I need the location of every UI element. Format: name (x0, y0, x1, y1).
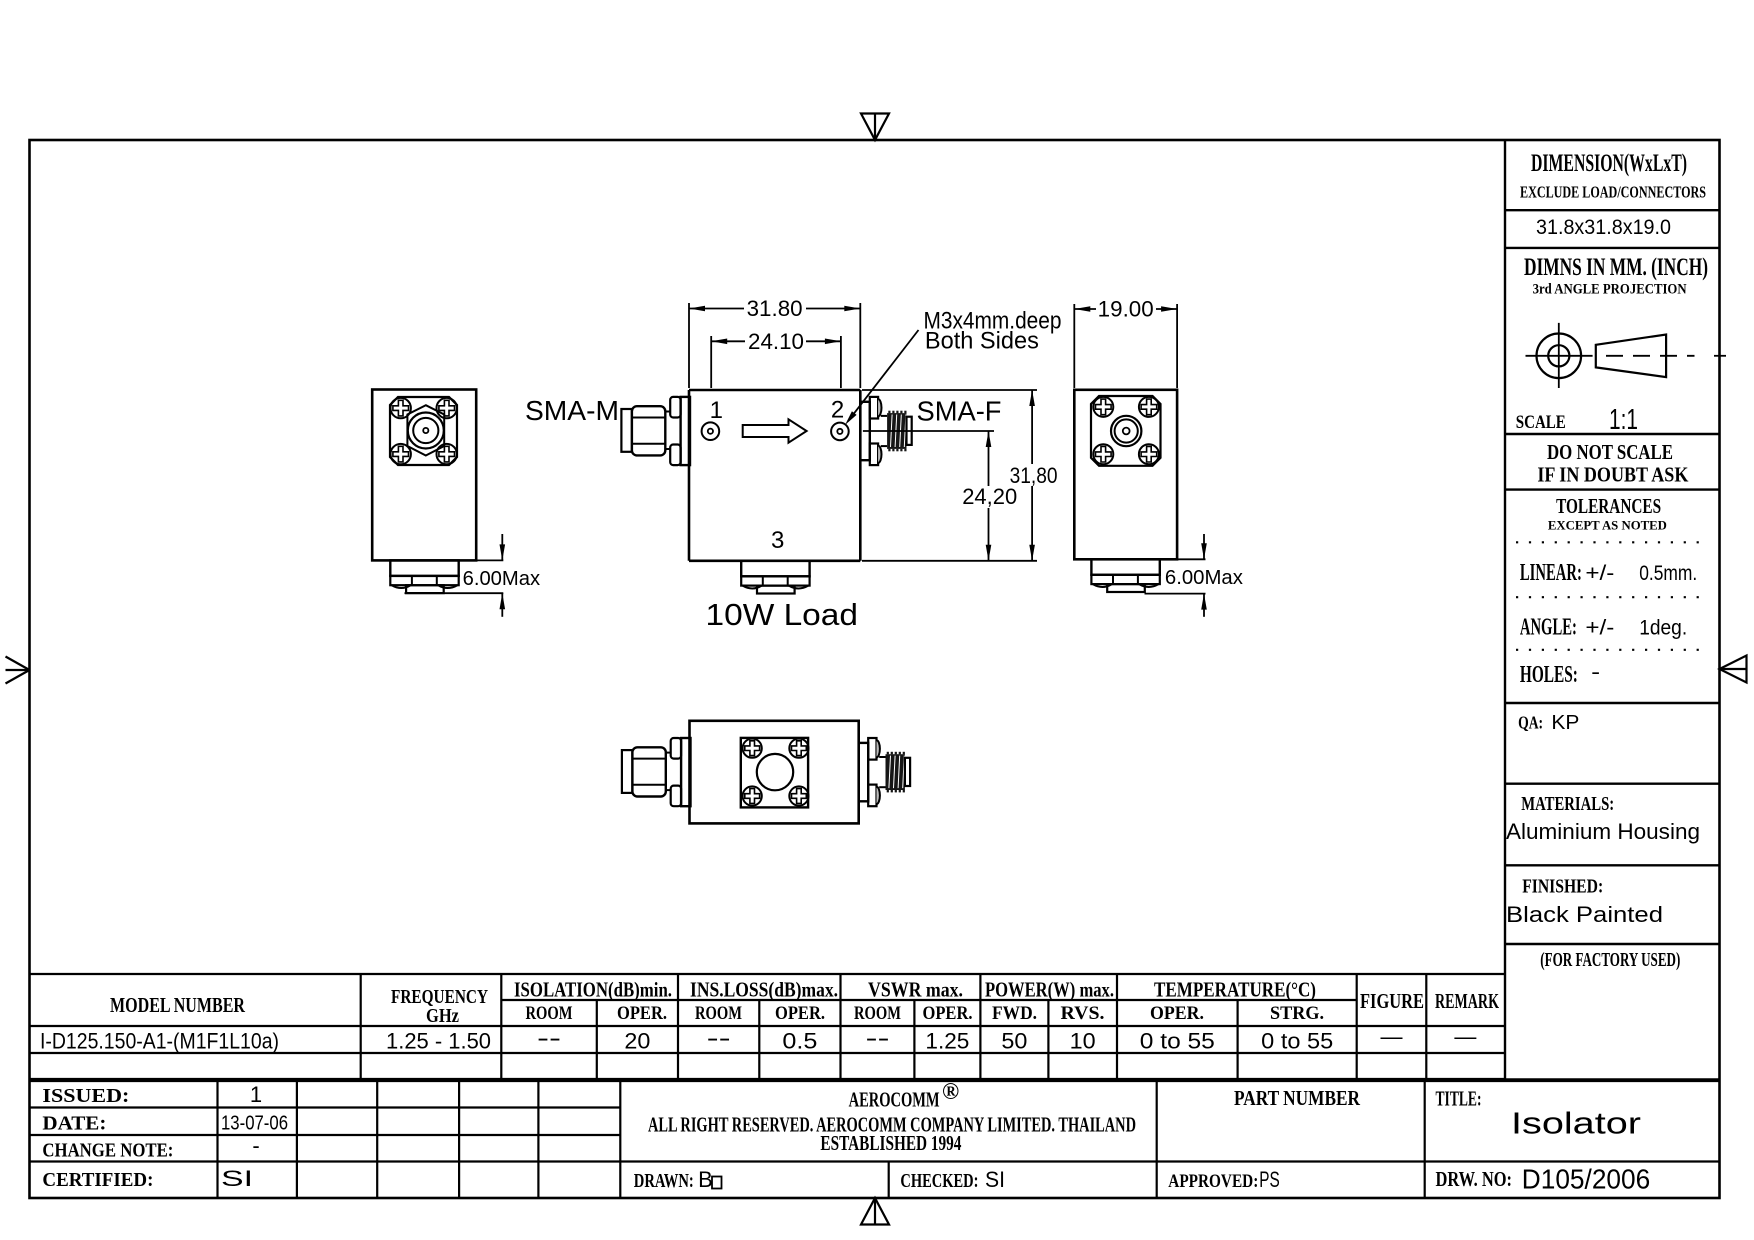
svg-text:RVS.: RVS. (1061, 1003, 1105, 1024)
svg-text:31.80: 31.80 (747, 296, 803, 321)
svg-text:20: 20 (624, 1029, 650, 1054)
svg-text:MODEL NUMBER: MODEL NUMBER (110, 993, 246, 1017)
svg-text:0.5mm.: 0.5mm. (1639, 562, 1697, 585)
svg-text:SCALE: SCALE (1516, 413, 1566, 433)
svg-text:PART NUMBER: PART NUMBER (1234, 1086, 1361, 1110)
svg-text:+/-: +/- (1585, 617, 1614, 640)
svg-text:DRAWN:: DRAWN: (634, 1170, 694, 1192)
svg-text:SI: SI (221, 1166, 253, 1191)
svg-text:1: 1 (710, 397, 723, 424)
svg-text:CERTIFIED:: CERTIFIED: (42, 1169, 153, 1191)
svg-text:QA:: QA: (1518, 713, 1543, 733)
svg-text:DO NOT SCALE: DO NOT SCALE (1547, 440, 1673, 464)
svg-text:SMA-M: SMA-M (525, 395, 619, 426)
svg-text:1:1: 1:1 (1609, 404, 1638, 436)
svg-text:-: - (252, 1133, 259, 1158)
svg-text:--: -- (537, 1025, 561, 1052)
svg-text:Both Sides: Both Sides (925, 327, 1039, 354)
svg-text:FIGURE: FIGURE (1360, 989, 1424, 1013)
svg-text:APPROVED:: APPROVED: (1168, 1171, 1258, 1192)
svg-text:®: ® (942, 1079, 959, 1104)
svg-text:ROOM: ROOM (854, 1003, 901, 1024)
svg-text:DIMENSION(WxLxT): DIMENSION(WxLxT) (1531, 150, 1687, 177)
svg-text:6.00Max: 6.00Max (463, 568, 540, 590)
svg-text:B: B (698, 1167, 713, 1192)
svg-text:STRG.: STRG. (1270, 1003, 1324, 1024)
svg-text:AEROCOMM: AEROCOMM (849, 1088, 940, 1112)
svg-text:10: 10 (1070, 1029, 1096, 1054)
svg-text:—: — (1381, 1024, 1403, 1049)
svg-text:VSWR max.: VSWR max. (868, 978, 963, 1002)
svg-text:ROOM: ROOM (695, 1003, 742, 1024)
svg-text:0 to 55: 0 to 55 (1261, 1029, 1333, 1054)
svg-text:13-07-06: 13-07-06 (221, 1113, 288, 1135)
svg-text:KP: KP (1551, 712, 1579, 734)
svg-text:POWER(W) max.: POWER(W) max. (985, 978, 1114, 1002)
svg-text:ANGLE:: ANGLE: (1520, 614, 1577, 641)
svg-text:1.25 - 1.50: 1.25 - 1.50 (386, 1029, 491, 1054)
svg-text:TEMPERATURE(°C): TEMPERATURE(°C) (1154, 978, 1316, 1002)
svg-text:FINISHED:: FINISHED: (1522, 877, 1603, 898)
svg-text:HOLES:: HOLES: (1520, 661, 1578, 688)
svg-text:IF IN DOUBT ASK: IF IN DOUBT ASK (1537, 463, 1689, 487)
svg-text:1: 1 (250, 1082, 262, 1107)
svg-text:Aluminium Housing: Aluminium Housing (1506, 819, 1700, 844)
svg-text:0.5: 0.5 (782, 1029, 817, 1054)
svg-text:OPER.: OPER. (617, 1003, 667, 1024)
svg-text:6.00Max: 6.00Max (1165, 567, 1243, 589)
svg-text:31.8x31.8x19.0: 31.8x31.8x19.0 (1536, 216, 1671, 239)
svg-text:TOLERANCES: TOLERANCES (1556, 494, 1661, 518)
svg-text:ISOLATION(dB)min.: ISOLATION(dB)min. (514, 978, 672, 1002)
svg-text:—: — (1454, 1024, 1476, 1049)
svg-text:0 to 55: 0 to 55 (1140, 1029, 1215, 1054)
svg-text:24.10: 24.10 (748, 329, 804, 354)
svg-text:OPER.: OPER. (923, 1003, 973, 1024)
svg-text:3rd ANGLE PROJECTION: 3rd ANGLE PROJECTION (1533, 282, 1687, 298)
svg-text:DRW. NO:: DRW. NO: (1436, 1169, 1513, 1191)
svg-text:TITLE:: TITLE: (1436, 1089, 1482, 1111)
svg-text:ISSUED:: ISSUED: (42, 1085, 129, 1107)
svg-text:GHz: GHz (426, 1005, 459, 1027)
svg-text:SI: SI (985, 1167, 1005, 1192)
svg-text:INS.LOSS(dB)max.: INS.LOSS(dB)max. (690, 978, 838, 1002)
svg-text:D105/2006: D105/2006 (1522, 1164, 1650, 1195)
svg-text:CHECKED:: CHECKED: (900, 1170, 978, 1192)
svg-text:DIMNS IN MM. (INCH): DIMNS IN MM. (INCH) (1524, 254, 1708, 281)
svg-text:PS: PS (1259, 1167, 1280, 1192)
svg-text:OPER.: OPER. (1150, 1003, 1204, 1024)
svg-text:EXCEPT AS NOTED: EXCEPT AS NOTED (1548, 519, 1667, 533)
svg-text:--: -- (866, 1025, 890, 1052)
svg-text:-: - (1591, 661, 1600, 684)
svg-text:50: 50 (1001, 1029, 1027, 1054)
svg-text:Black Painted: Black Painted (1506, 902, 1663, 927)
svg-text:OPER.: OPER. (775, 1003, 825, 1024)
svg-text:ROOM: ROOM (526, 1003, 573, 1024)
svg-text:10W Load: 10W Load (706, 597, 859, 632)
svg-text:24,20: 24,20 (962, 484, 1017, 509)
svg-text:LINEAR:: LINEAR: (1520, 559, 1582, 586)
svg-text:EXCLUDE LOAD/CONNECTORS: EXCLUDE LOAD/CONNECTORS (1520, 183, 1706, 202)
svg-text:MATERIALS:: MATERIALS: (1521, 794, 1614, 815)
svg-text:+/-: +/- (1585, 562, 1614, 585)
svg-text:DATE:: DATE: (42, 1113, 106, 1135)
svg-text:19.00: 19.00 (1098, 297, 1154, 322)
svg-text:3: 3 (771, 527, 784, 554)
svg-text:I-D125.150-A1-(M1F1L10a): I-D125.150-A1-(M1F1L10a) (40, 1029, 279, 1054)
svg-text:REMARK: REMARK (1435, 989, 1499, 1013)
svg-text:ESTABLISHED 1994: ESTABLISHED 1994 (820, 1131, 961, 1155)
svg-text:1deg.: 1deg. (1639, 617, 1687, 640)
svg-text:1.25: 1.25 (925, 1029, 969, 1054)
svg-text:(FOR FACTORY USED): (FOR FACTORY USED) (1540, 950, 1680, 971)
svg-text:Isolator: Isolator (1511, 1106, 1641, 1141)
svg-text:--: -- (707, 1025, 731, 1052)
svg-text:FWD.: FWD. (992, 1003, 1037, 1024)
svg-text:SMA-F: SMA-F (917, 395, 1002, 426)
svg-text:2: 2 (831, 397, 844, 424)
svg-text:CHANGE NOTE:: CHANGE NOTE: (42, 1140, 173, 1162)
